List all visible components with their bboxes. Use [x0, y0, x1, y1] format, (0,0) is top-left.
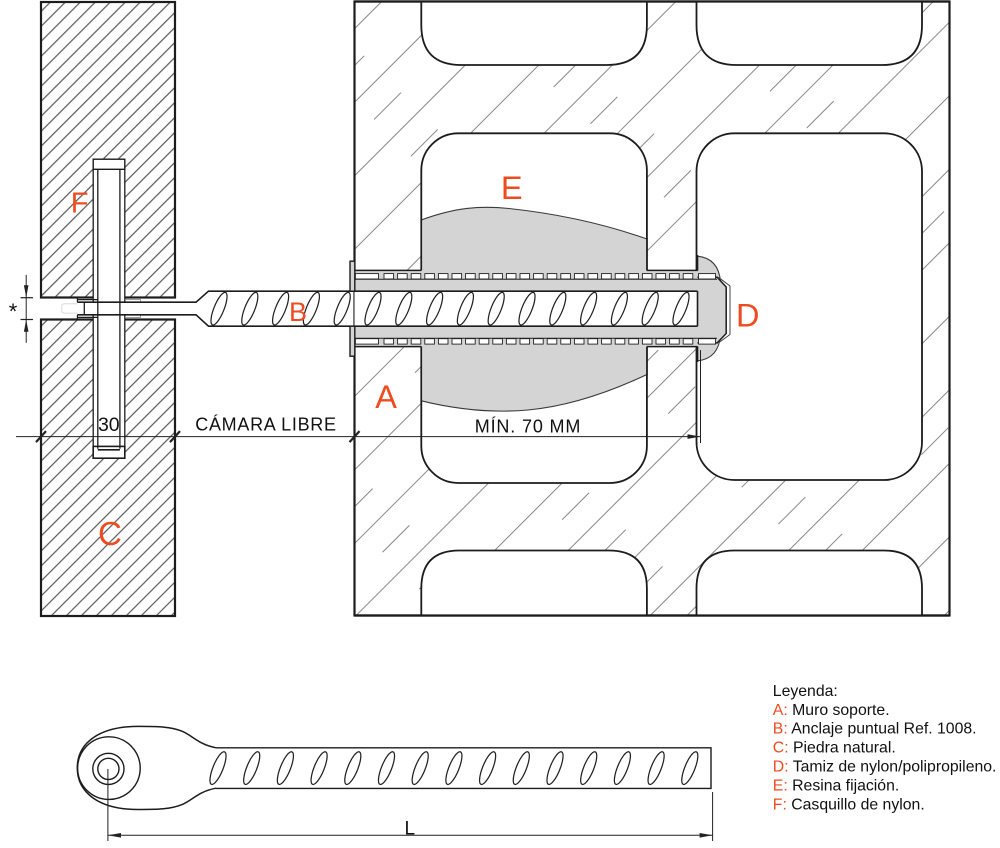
svg-text:Leyenda:: Leyenda:: [773, 683, 838, 700]
svg-text:F: Casquillo de nylon.: F: Casquillo de nylon.: [773, 796, 925, 813]
svg-text:E: Resina fijación.: E: Resina fijación.: [773, 777, 899, 794]
svg-text:A: Muro soporte.: A: Muro soporte.: [773, 702, 890, 719]
svg-text:MÍN. 70 MM: MÍN. 70 MM: [475, 416, 582, 436]
svg-text:CÁMARA LIBRE: CÁMARA LIBRE: [195, 415, 336, 435]
svg-text:D: Tamiz de nylon/polipropilen: D: Tamiz de nylon/polipropileno.: [773, 759, 997, 776]
svg-text:A: A: [375, 379, 397, 415]
svg-text:E: E: [501, 170, 523, 206]
svg-text:B: B: [289, 297, 307, 327]
svg-text:C: C: [98, 515, 122, 552]
svg-text:D: D: [736, 298, 759, 334]
svg-text:F: F: [71, 188, 89, 220]
svg-text:30: 30: [98, 414, 120, 436]
svg-text:B: Anclaje puntual Ref. 1008.: B: Anclaje puntual Ref. 1008.: [773, 721, 977, 738]
svg-text:C: Piedra natural.: C: Piedra natural.: [773, 740, 896, 757]
svg-text:L: L: [405, 819, 416, 840]
svg-text:*: *: [9, 299, 18, 324]
